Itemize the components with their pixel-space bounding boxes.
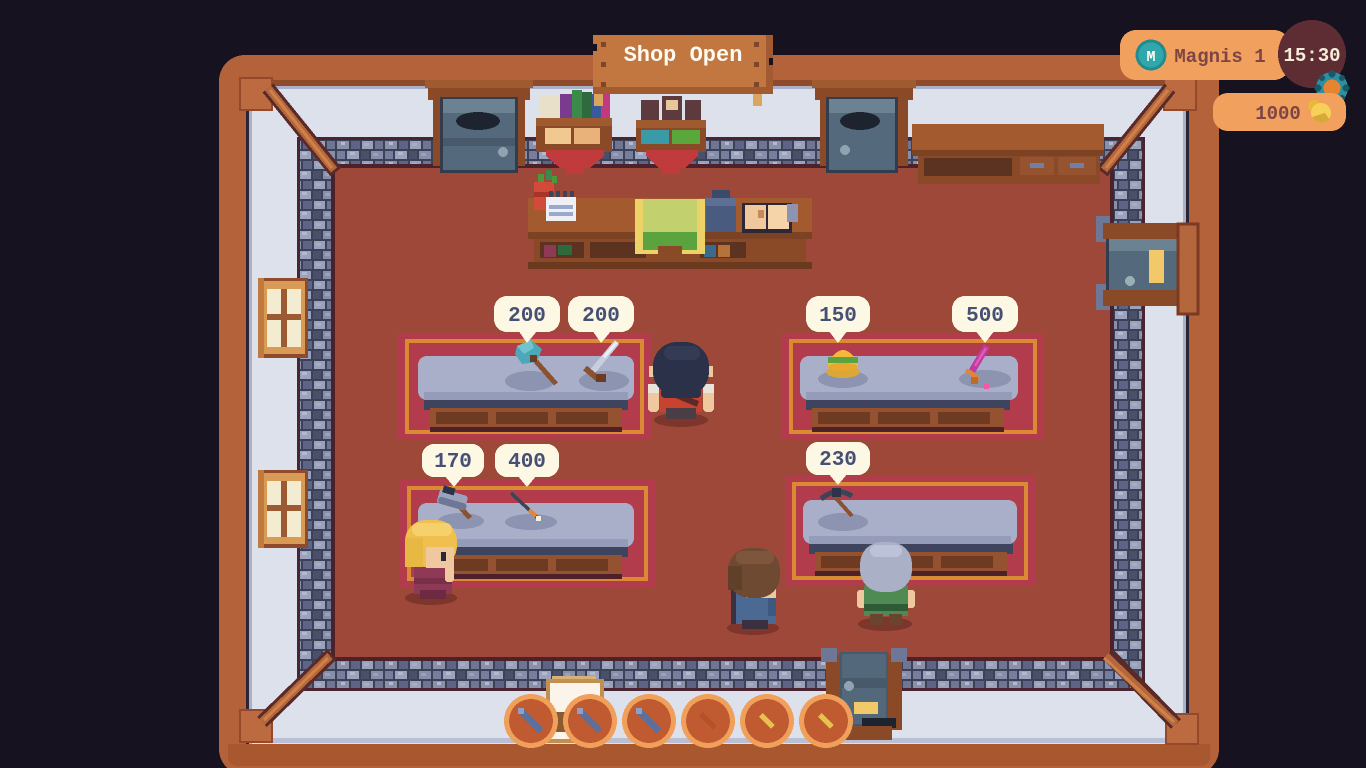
svg-text:M: M — [1146, 49, 1155, 66]
svg-text:230: 230 — [819, 449, 857, 472]
svg-text:Magnis 1: Magnis 1 — [1174, 46, 1265, 68]
svg-text:1000: 1000 — [1255, 103, 1301, 125]
svg-text:500: 500 — [966, 305, 1004, 328]
svg-text:200: 200 — [508, 305, 546, 328]
svg-text:Shop Open: Shop Open — [624, 43, 743, 68]
svg-text:15:30: 15:30 — [1283, 45, 1340, 67]
svg-text:400: 400 — [508, 451, 546, 474]
svg-text:150: 150 — [819, 305, 857, 328]
svg-text:200: 200 — [582, 305, 620, 328]
svg-text:170: 170 — [434, 451, 472, 474]
